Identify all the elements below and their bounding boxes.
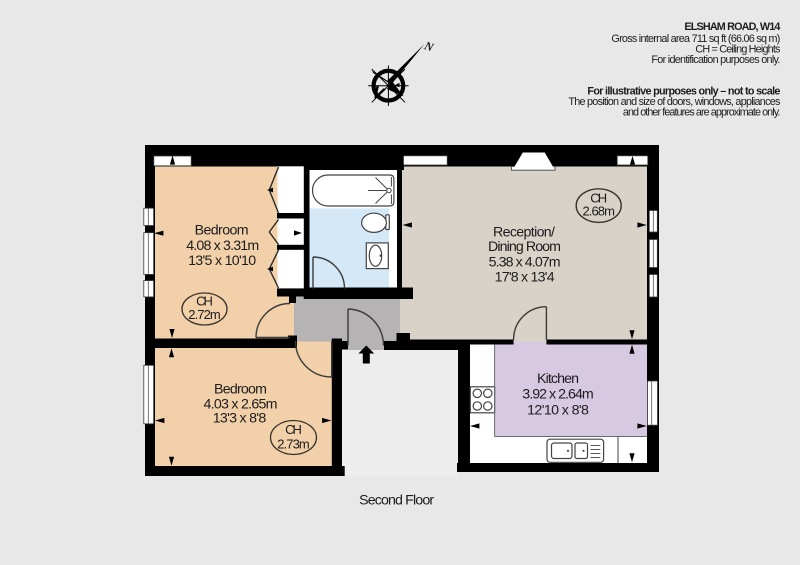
svg-text:2.68m: 2.68m (582, 204, 615, 219)
svg-text:2.73m: 2.73m (277, 437, 310, 452)
svg-text:ELSHAM ROAD, W14: ELSHAM ROAD, W14 (684, 21, 780, 33)
svg-text:Dining Room: Dining Room (488, 239, 561, 255)
svg-text:Kitchen: Kitchen (537, 371, 579, 387)
svg-text:13'3 x 8'8: 13'3 x 8'8 (213, 411, 267, 427)
svg-text:5.38 x 4.07m: 5.38 x 4.07m (489, 255, 561, 271)
svg-text:Bedroom: Bedroom (195, 223, 249, 239)
svg-text:13'5 x 10'10: 13'5 x 10'10 (188, 253, 256, 269)
svg-text:Bedroom: Bedroom (214, 381, 267, 397)
svg-text:3.92 x 2.64m: 3.92 x 2.64m (522, 387, 593, 403)
svg-text:17'8 x 13'4: 17'8 x 13'4 (495, 270, 555, 286)
svg-text:and other features are approxi: and other features are approximate only. (623, 107, 781, 119)
svg-text:Second Floor: Second Floor (359, 492, 434, 508)
svg-text:For identification purposes on: For identification purposes only. (651, 54, 780, 66)
svg-text:CH: CH (285, 422, 302, 437)
svg-text:4.08 x 3.31m: 4.08 x 3.31m (186, 238, 259, 254)
svg-text:2.72m: 2.72m (188, 307, 221, 322)
svg-text:12'10 x 8'8: 12'10 x 8'8 (527, 403, 589, 419)
svg-text:Reception/: Reception/ (493, 225, 555, 241)
